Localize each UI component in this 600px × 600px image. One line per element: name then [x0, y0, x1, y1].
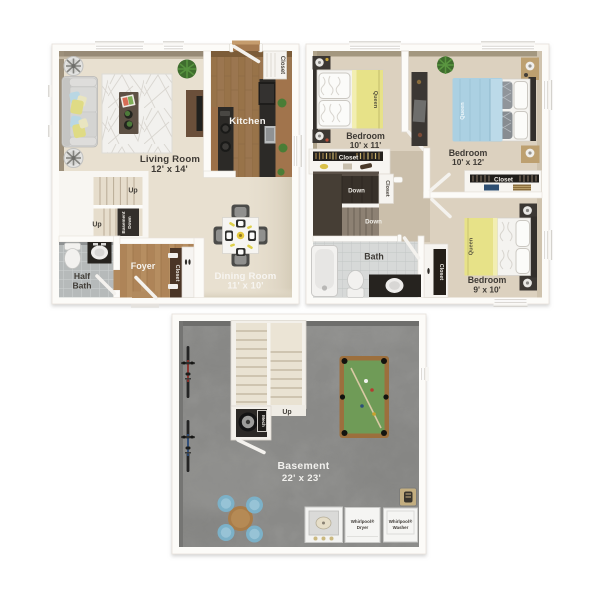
svg-text:Closet: Closet [174, 265, 180, 282]
svg-text:Dryer: Dryer [357, 525, 369, 530]
svg-text:Whirlpool®: Whirlpool® [351, 519, 375, 524]
svg-text:11' x 10': 11' x 10' [227, 281, 263, 291]
svg-text:Closet: Closet [384, 180, 390, 197]
svg-text:Bath: Bath [364, 252, 384, 262]
svg-text:9' x 10': 9' x 10' [473, 285, 500, 295]
svg-text:10' x 11': 10' x 11' [350, 140, 381, 150]
svg-text:12' x 14': 12' x 14' [151, 164, 188, 174]
svg-text:Kitchen: Kitchen [229, 116, 266, 127]
svg-text:Bath: Bath [72, 281, 91, 291]
svg-text:Up: Up [282, 409, 291, 416]
svg-text:Queen: Queen [469, 237, 475, 255]
svg-text:Up: Up [128, 188, 137, 195]
svg-text:Closet: Closet [339, 155, 359, 162]
svg-text:Queen: Queen [460, 102, 466, 120]
svg-text:Closet: Closet [279, 56, 285, 74]
svg-text:Down: Down [348, 188, 365, 195]
svg-text:10' x 12': 10' x 12' [452, 157, 484, 167]
svg-text:Up: Up [92, 222, 101, 229]
svg-text:Washer: Washer [393, 525, 409, 530]
svg-text:Foyer: Foyer [131, 261, 156, 271]
svg-text:Down: Down [365, 219, 382, 226]
svg-text:Basement: Basement [277, 461, 329, 472]
svg-text:Queen: Queen [372, 91, 378, 109]
svg-text:Closet: Closet [438, 264, 444, 281]
svg-text:Mech: Mech [261, 415, 266, 427]
svg-text:Down: Down [127, 216, 132, 229]
svg-text:Closet: Closet [494, 177, 513, 184]
svg-text:22' x 23': 22' x 23' [282, 473, 321, 484]
svg-text:Whirlpool®: Whirlpool® [389, 519, 413, 524]
svg-text:Bedroom: Bedroom [468, 275, 507, 285]
svg-text:Basement: Basement [121, 211, 126, 233]
svg-text:Half: Half [74, 271, 90, 281]
